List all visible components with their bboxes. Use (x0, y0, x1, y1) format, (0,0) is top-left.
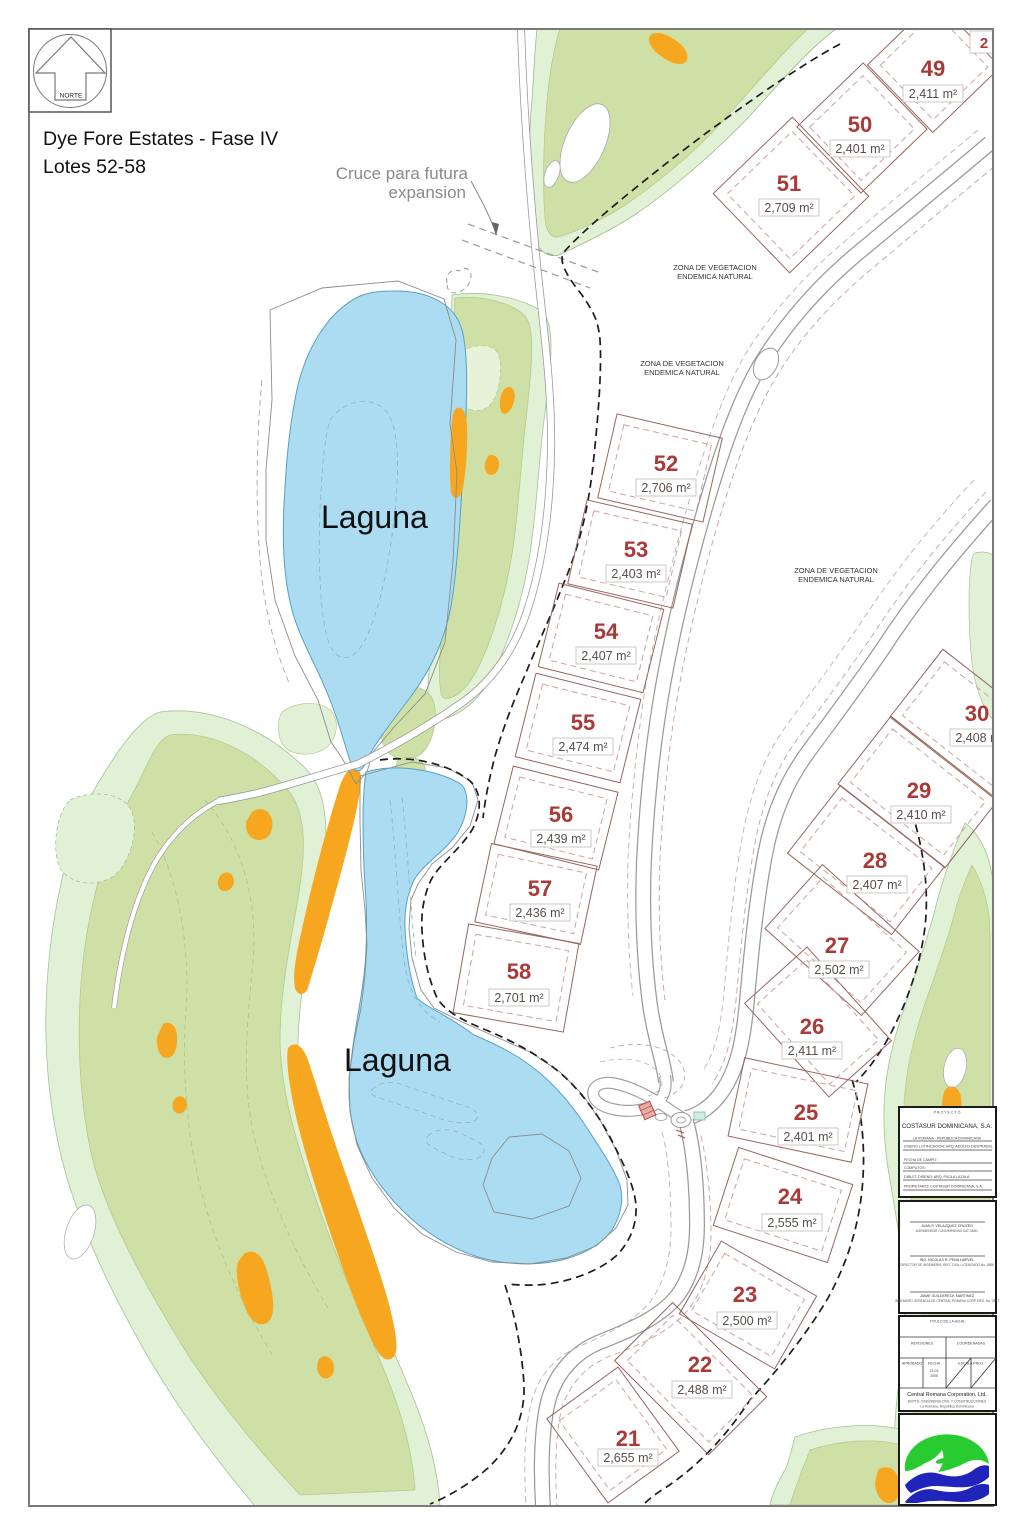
svg-text:2,403 m²: 2,403 m² (611, 567, 660, 581)
svg-text:56: 56 (549, 802, 573, 827)
svg-text:53: 53 (624, 537, 648, 562)
svg-text:2,439 m²: 2,439 m² (536, 832, 585, 846)
svg-text:ING. NICOLAS R. PENA HARVEL: ING. NICOLAS R. PENA HARVEL (920, 1258, 975, 1262)
svg-text:27: 27 (825, 933, 849, 958)
svg-text:2,407 m²: 2,407 m² (852, 878, 901, 892)
svg-text:52: 52 (654, 451, 678, 476)
svg-text:2,407 m²: 2,407 m² (581, 649, 630, 663)
svg-text:FECHA: FECHA (928, 1362, 941, 1366)
svg-text:50: 50 (848, 112, 872, 137)
svg-text:2,411 m²: 2,411 m² (788, 1044, 836, 1058)
svg-text:Lotes 52-58: Lotes 52-58 (43, 156, 146, 178)
svg-text:DEPTO. INGENIERIA CIVIL Y CONS: DEPTO. INGENIERIA CIVIL Y CONSTRUCCIONES (908, 1400, 987, 1404)
svg-text:FECHA DE CAMPO:: FECHA DE CAMPO: (904, 1158, 937, 1162)
svg-text:ZONA DE VEGETACION: ZONA DE VEGETACION (640, 359, 724, 368)
svg-text:expansion: expansion (388, 183, 466, 202)
svg-text:ENDEMICA NATURAL: ENDEMICA NATURAL (644, 368, 720, 377)
svg-text:2,411 m²: 2,411 m² (909, 87, 957, 101)
svg-text:2,401 m²: 2,401 m² (835, 142, 884, 156)
svg-text:49: 49 (921, 56, 945, 81)
svg-text:2,502 m²: 2,502 m² (814, 963, 863, 977)
svg-text:Central Romana Corporation, Lt: Central Romana Corporation, Ltd. (907, 1392, 987, 1398)
svg-text:58: 58 (507, 959, 531, 984)
svg-text:22: 22 (688, 1352, 712, 1377)
svg-text:COSTASUR DOMINICANA, S.A.: COSTASUR DOMINICANA, S.A. (902, 1123, 993, 1130)
svg-text:JUAN P. VELAZQUEZ CRUZEO: JUAN P. VELAZQUEZ CRUZEO (921, 1224, 973, 1228)
svg-text:ZONA DE VEGETACION: ZONA DE VEGETACION (673, 263, 757, 272)
svg-text:2,709 m²: 2,709 m² (764, 201, 813, 215)
svg-text:Cruce para futura: Cruce para futura (336, 164, 469, 183)
svg-text:LA ROMANA - REPUBLICA DOMINICA: LA ROMANA - REPUBLICA DOMINICANA (913, 1137, 982, 1141)
svg-text:2,488 m²: 2,488 m² (677, 1383, 726, 1397)
svg-text:DIBUJT. DISENO: ARQ. PA: DIBUJT. DISENO: ARQ. PAOLA LAZALA (904, 1175, 970, 1179)
svg-text:23-03: 23-03 (930, 1369, 939, 1373)
svg-text:ENDEMICA NATURAL: ENDEMICA NATURAL (677, 272, 753, 281)
svg-text:PROPIETARIO: COSTASUR DO: PROPIETARIO: COSTASUR DOMINICANA, S.A. (904, 1185, 983, 1189)
svg-text:Dye Fore Estates - Fase IV: Dye Fore Estates - Fase IV (43, 128, 278, 150)
svg-text:Laguna: Laguna (321, 499, 428, 535)
svg-text:2: 2 (980, 35, 988, 52)
svg-text:51: 51 (777, 171, 801, 196)
svg-text:2,500 m²: 2,500 m² (722, 1314, 771, 1328)
svg-text:JAIME GUILDERECK MARTINEZ: JAIME GUILDERECK MARTINEZ (920, 1294, 975, 1298)
svg-text:28: 28 (863, 848, 887, 873)
svg-text:54: 54 (594, 619, 619, 644)
svg-text:57: 57 (528, 876, 552, 901)
svg-text:21: 21 (616, 1426, 640, 1451)
svg-text:TITULO DE LA HOJA: TITULO DE LA HOJA (930, 1320, 965, 1324)
svg-text:2005: 2005 (930, 1374, 938, 1378)
svg-text:29: 29 (907, 778, 931, 803)
svg-text:2,555 m²: 2,555 m² (767, 1216, 816, 1230)
svg-text:30: 30 (965, 701, 989, 726)
svg-text:2,474 m²: 2,474 m² (558, 740, 607, 754)
svg-text:2,706 m²: 2,706 m² (641, 481, 690, 495)
svg-text:26: 26 (800, 1014, 824, 1039)
svg-text:2,655 m²: 2,655 m² (603, 1451, 652, 1465)
svg-text:INGENIERO GERENCIA DE CENTRAL: INGENIERO GERENCIA DE CENTRAL ROMANA COR… (895, 1299, 999, 1303)
svg-text:COORDENADAS: COORDENADAS (957, 1342, 986, 1346)
svg-text:23: 23 (733, 1282, 757, 1307)
svg-text:DIRECTOR DE INGENIERIA, REG. C: DIRECTOR DE INGENIERIA, REG. CIVIL LICEN… (900, 1263, 994, 1267)
svg-text:NORTE: NORTE (60, 93, 83, 100)
svg-text:ZONA DE VEGETACION: ZONA DE VEGETACION (794, 566, 878, 575)
svg-text:2,401 m²: 2,401 m² (783, 1130, 832, 1144)
svg-text:La Romana, Republica Dominican: La Romana, Republica Dominicana (920, 1405, 973, 1409)
svg-text:AGRIMENSOR / UNIVERSIDAD CAT.: AGRIMENSOR / UNIVERSIDAD CAT. MAD. (916, 1229, 979, 1233)
svg-text:COMPUTOS:: COMPUTOS: (904, 1166, 926, 1170)
svg-text:Laguna: Laguna (344, 1042, 451, 1078)
svg-text:2,701 m²: 2,701 m² (494, 991, 543, 1005)
svg-text:24: 24 (778, 1184, 803, 1209)
svg-text:2,436 m²: 2,436 m² (515, 906, 564, 920)
svg-text:APROBADO: APROBADO (902, 1362, 923, 1366)
svg-text:ENDEMICA NATURAL: ENDEMICA NATURAL (798, 575, 874, 584)
svg-text:55: 55 (571, 710, 595, 735)
svg-text:DISENO LOTIFICACION: ARQ. AD: DISENO LOTIFICACION: ARQ. ADOLFO DESPRAD… (904, 1145, 993, 1149)
svg-text:REVISIONES: REVISIONES (911, 1342, 934, 1346)
svg-text:P R O Y E C T O: P R O Y E C T O (934, 1111, 961, 1115)
svg-text:2,410 m²: 2,410 m² (896, 808, 945, 822)
svg-text:25: 25 (794, 1100, 818, 1125)
